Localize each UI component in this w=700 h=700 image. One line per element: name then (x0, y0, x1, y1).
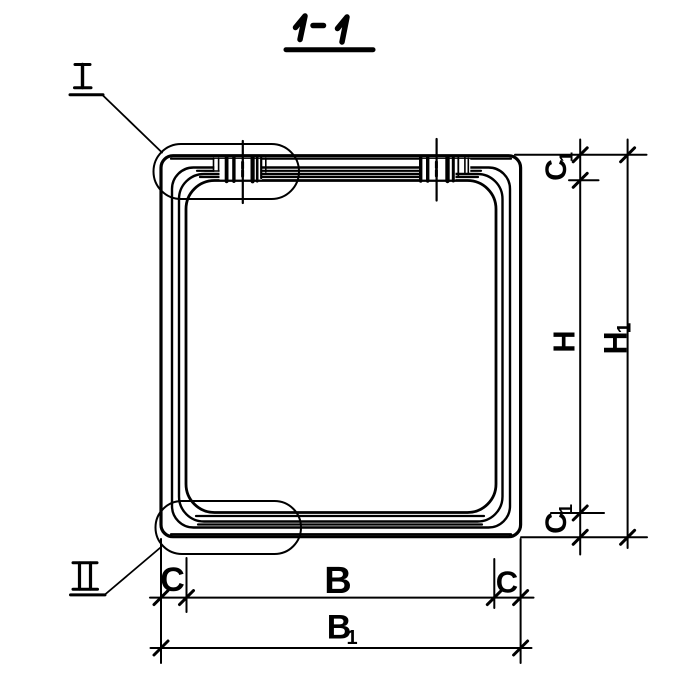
svg-text:C: C (160, 561, 185, 599)
svg-text:1: 1 (557, 152, 577, 162)
svg-text:C: C (496, 565, 518, 600)
svg-text:H: H (598, 331, 634, 354)
svg-text:1: 1 (615, 322, 636, 333)
svg-text:1: 1 (346, 627, 357, 649)
svg-text:H: H (547, 330, 582, 352)
svg-text:1: 1 (556, 504, 576, 514)
svg-text:B: B (324, 560, 351, 602)
svg-text:C: C (540, 512, 573, 534)
